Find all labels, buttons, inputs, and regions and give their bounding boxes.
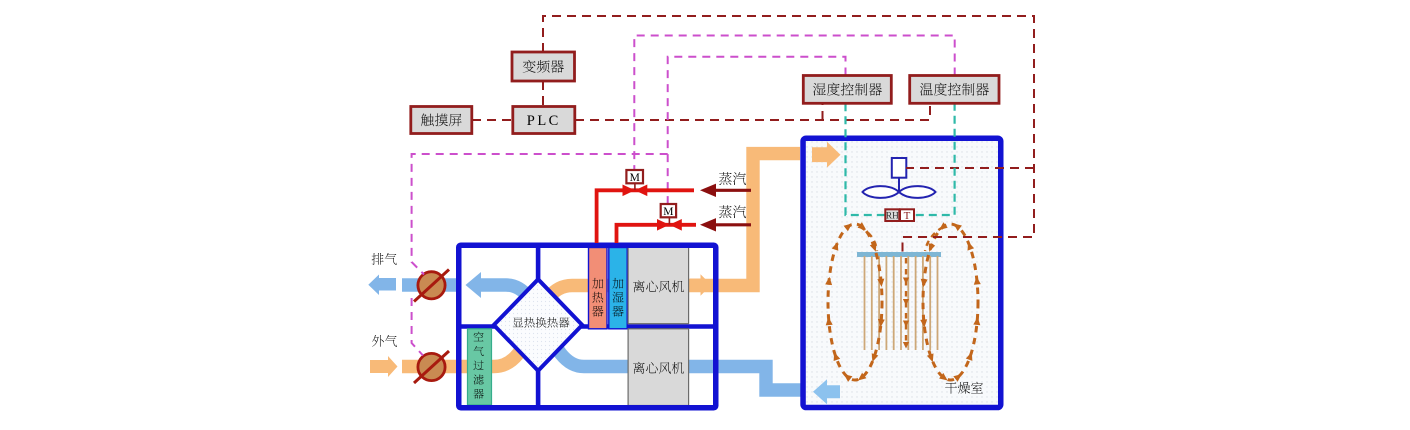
svg-text:T: T	[904, 210, 911, 222]
svg-text:M: M	[630, 172, 640, 184]
svg-text:PLC: PLC	[527, 113, 561, 129]
svg-text:RH: RH	[886, 212, 899, 222]
svg-text:M: M	[663, 206, 673, 218]
